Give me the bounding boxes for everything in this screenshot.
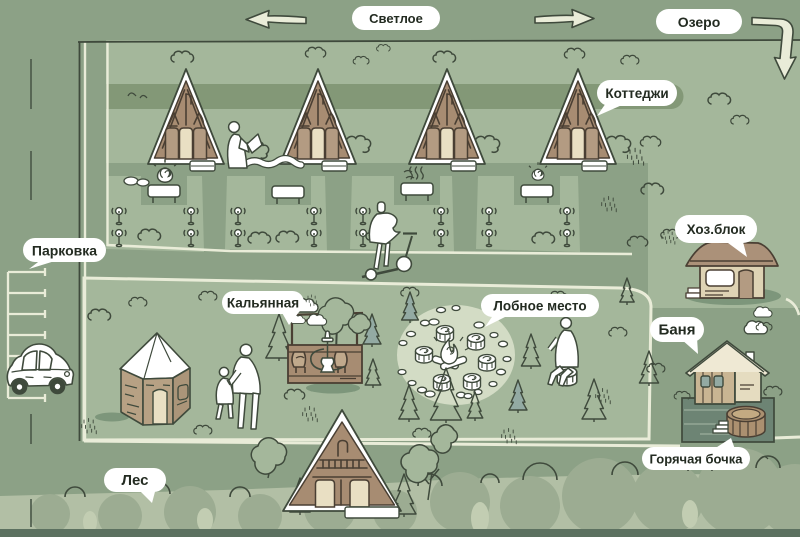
svg-text:Баня: Баня bbox=[659, 322, 696, 339]
svg-text:Горячая бочка: Горячая бочка bbox=[650, 452, 744, 467]
svg-text:Лес: Лес bbox=[121, 472, 148, 489]
svg-text:Хоз.блок: Хоз.блок bbox=[687, 222, 746, 237]
svg-text:Парковка: Парковка bbox=[32, 243, 97, 259]
svg-text:Лобное место: Лобное место bbox=[493, 299, 586, 314]
svg-text:Кальянная: Кальянная bbox=[227, 296, 299, 311]
svg-text:Коттеджи: Коттеджи bbox=[605, 86, 668, 101]
svg-text:Светлое: Светлое bbox=[369, 11, 423, 26]
svg-text:Озеро: Озеро bbox=[678, 14, 721, 30]
